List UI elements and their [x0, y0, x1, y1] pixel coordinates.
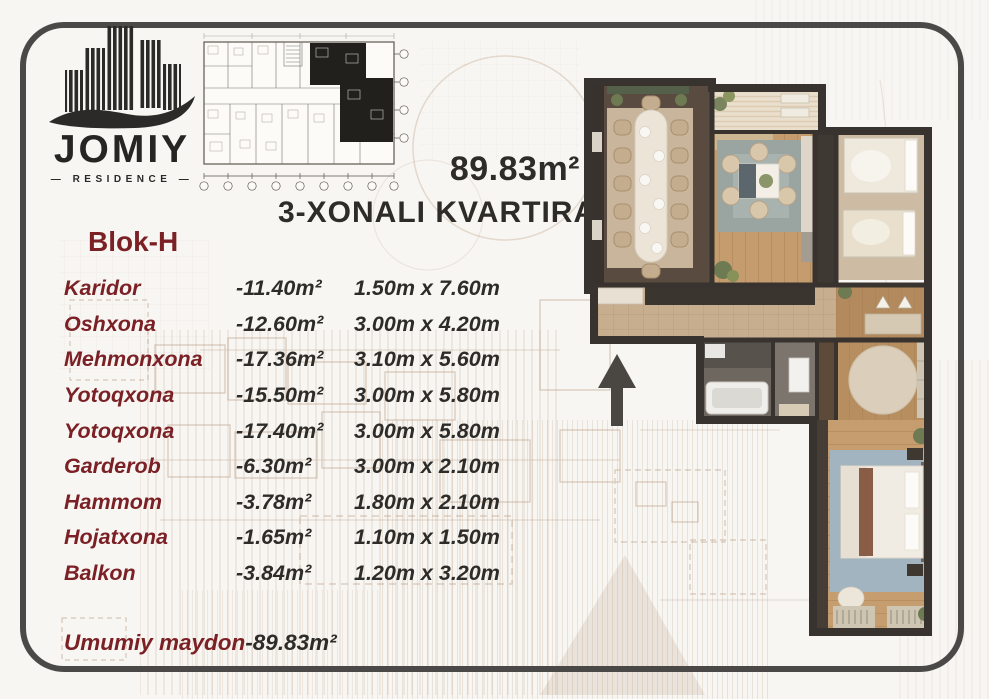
room-corridor [594, 285, 836, 340]
room-table: Karidor -11.40m² 1.50m x 7.60m Oshxona -… [60, 271, 555, 591]
room-area: -1.65m² [236, 525, 354, 550]
logo-subtitle: — RESIDENCE — [36, 174, 208, 185]
table-row: Yotoqxona -17.40m² 3.00m x 5.80m [60, 413, 555, 449]
room-dimensions: 3.00m x 5.80m [354, 383, 555, 408]
room-dimensions: 1.80m x 2.10m [354, 490, 555, 515]
room-dimensions: 1.10m x 1.50m [354, 525, 555, 550]
room-dimensions: 1.50m x 7.60m [354, 276, 555, 301]
table-row: Hammom -3.78m² 1.80m x 2.10m [60, 485, 555, 521]
room-name: Mehmonxona [60, 347, 236, 372]
room-area: -3.84m² [236, 561, 354, 586]
room-wc [773, 340, 817, 420]
room-name: Yotoqxona [60, 383, 236, 408]
room-dimensions: 3.00m x 2.10m [354, 454, 555, 479]
north-arrow-icon [596, 352, 638, 428]
table-row: Oshxona -12.60m² 3.00m x 4.20m [60, 307, 555, 343]
room-garderob [817, 340, 928, 420]
brand-logo: JOMIY — RESIDENCE — [36, 24, 208, 185]
table-row: Balkon -3.84m² 1.20m x 3.20m [60, 556, 555, 592]
table-row: Yotoqxona -15.50m² 3.00m x 5.80m [60, 378, 555, 414]
room-dimensions: 3.00m x 4.20m [354, 312, 555, 337]
building-logo-icon [47, 24, 197, 136]
room-area: -6.30m² [236, 454, 354, 479]
table-row: Mehmonxona -17.36m² 3.10m x 5.60m [60, 342, 555, 378]
room-dimensions: 3.00m x 5.80m [354, 419, 555, 444]
room-area: -11.40m² [236, 276, 354, 301]
room-area: -3.78m² [236, 490, 354, 515]
apartment-type-title: 3-XONALI KVARTIRA [278, 196, 580, 230]
room-name: Hojatxona [60, 525, 236, 550]
logo-title: JOMIY [36, 130, 208, 169]
total-label: Umumiy maydon [60, 630, 245, 656]
table-row: Hojatxona -1.65m² 1.10m x 1.50m [60, 520, 555, 556]
room-balcony [712, 88, 822, 132]
room-name: Hammom [60, 490, 236, 515]
room-name: Garderob [60, 454, 236, 479]
apartment-area-title: 89.83m² [280, 150, 580, 189]
room-area: -17.36m² [236, 347, 354, 372]
room-area: -15.50m² [236, 383, 354, 408]
room-name: Karidor [60, 276, 236, 301]
room-area: -17.40m² [236, 419, 354, 444]
total-value: -89.83m² [245, 630, 336, 656]
room-bedroom-2 [813, 420, 932, 632]
room-name: Balkon [60, 561, 236, 586]
table-row: Karidor -11.40m² 1.50m x 7.60m [60, 271, 555, 307]
room-name: Oshxona [60, 312, 236, 337]
room-area: -12.60m² [236, 312, 354, 337]
total-row: Umumiy maydon -89.83m² [60, 630, 555, 656]
room-bathroom [700, 340, 773, 420]
room-dimensions: 3.10m x 5.60m [354, 347, 555, 372]
block-label: Blok-H [88, 226, 178, 258]
room-name: Yotoqxona [60, 419, 236, 444]
room-dimensions: 1.20m x 3.20m [354, 561, 555, 586]
table-row: Garderob -6.30m² 3.00m x 2.10m [60, 449, 555, 485]
